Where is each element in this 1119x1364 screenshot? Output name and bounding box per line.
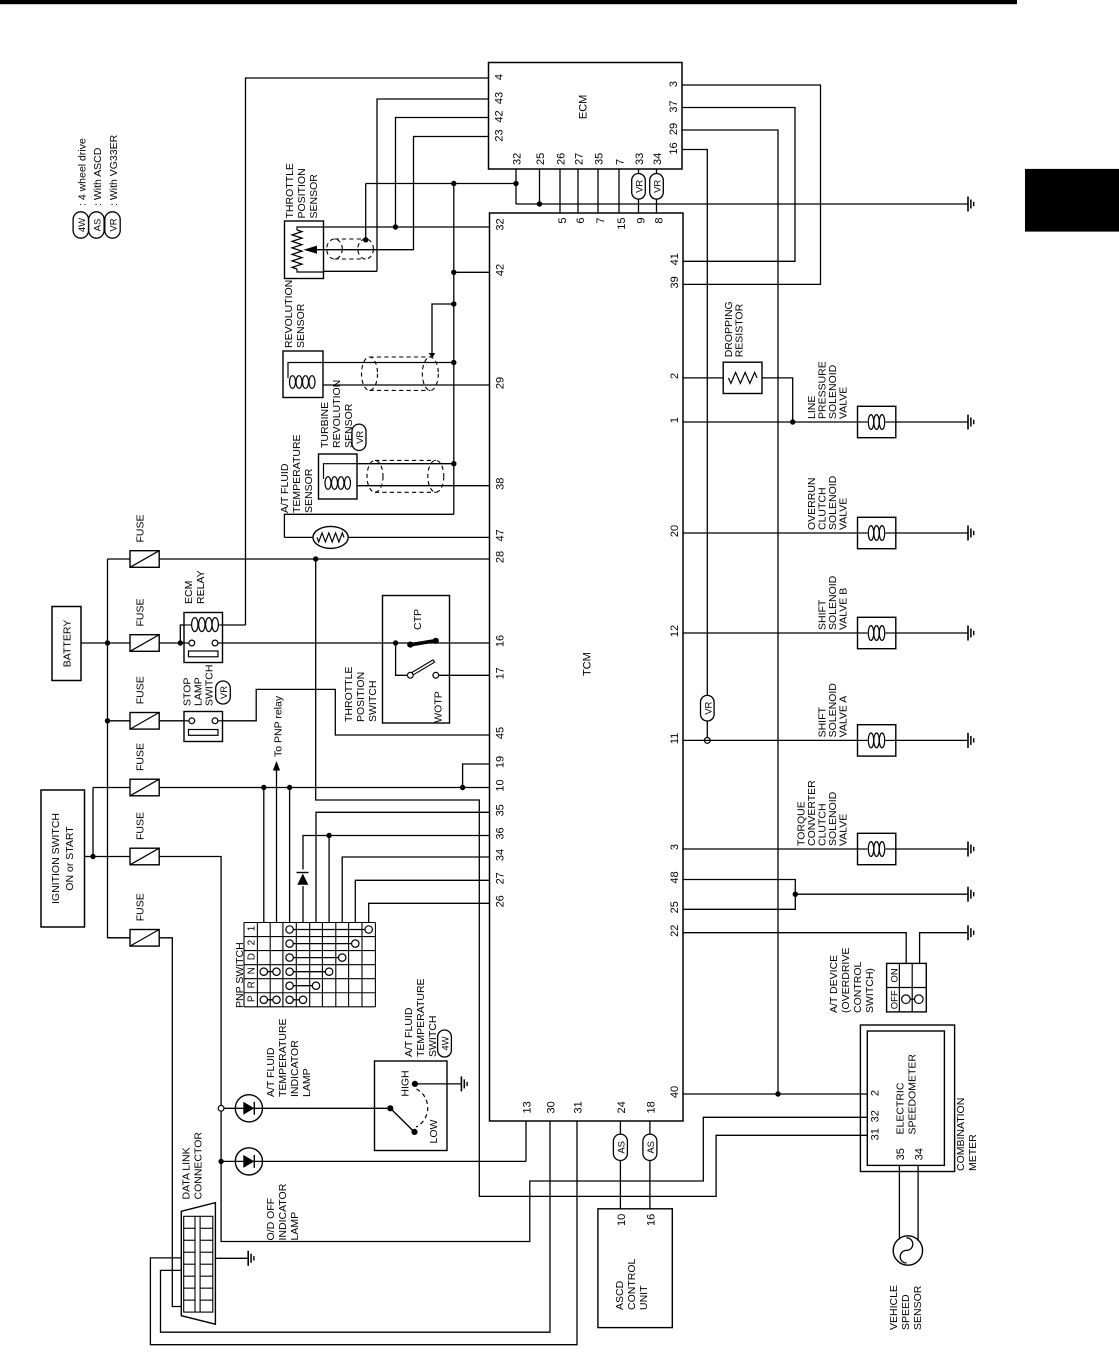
svg-text:FUSE: FUSE: [135, 598, 147, 626]
svg-text:19: 19: [494, 756, 506, 768]
svg-text:AS: AS: [646, 1141, 657, 1154]
svg-text:R: R: [247, 981, 258, 988]
svg-text:7: 7: [595, 218, 607, 224]
svg-text:17: 17: [494, 667, 506, 679]
svg-text:35: 35: [594, 153, 606, 165]
svg-text:FUSE: FUSE: [135, 893, 147, 921]
svg-text:SWITCH: SWITCH: [204, 665, 216, 706]
svg-text:27: 27: [574, 153, 586, 165]
svg-text:31: 31: [869, 1128, 881, 1140]
svg-text:CONTROL: CONTROL: [852, 962, 864, 1013]
svg-text:RESISTOR: RESISTOR: [734, 303, 746, 357]
svg-text:11: 11: [669, 733, 681, 744]
svg-text:REVOLUTION: REVOLUTION: [331, 380, 343, 448]
svg-text:POSITION: POSITION: [296, 168, 308, 218]
svg-text:39: 39: [669, 276, 681, 288]
svg-text:(OVERDRIVE: (OVERDRIVE: [840, 948, 852, 1013]
svg-text:SWITCH): SWITCH): [864, 968, 876, 1013]
svg-text:6: 6: [575, 218, 587, 224]
svg-text:23: 23: [494, 129, 506, 141]
svg-text:1: 1: [247, 925, 258, 931]
svg-text:VR: VR: [219, 686, 230, 699]
svg-text:A/T FLUID: A/T FLUID: [279, 463, 291, 513]
svg-text:ELECTRIC: ELECTRIC: [895, 1082, 907, 1134]
svg-text:VALVE B: VALVE B: [837, 588, 849, 630]
svg-text:VALVE: VALVE: [837, 387, 849, 419]
svg-text:4W: 4W: [441, 1036, 452, 1050]
svg-text:22: 22: [669, 925, 681, 937]
svg-text:VR: VR: [635, 180, 646, 193]
svg-text:TURBINE: TURBINE: [319, 402, 331, 448]
svg-text:LOW: LOW: [428, 1119, 440, 1143]
svg-text:1: 1: [669, 417, 681, 423]
svg-text:ECM: ECM: [183, 581, 195, 604]
svg-text:26: 26: [494, 895, 506, 907]
svg-text:N: N: [247, 967, 258, 974]
svg-text:3: 3: [668, 81, 680, 87]
svg-text:BATTERY: BATTERY: [62, 620, 74, 667]
svg-text:25: 25: [669, 901, 681, 913]
svg-text:WOTP: WOTP: [433, 691, 445, 723]
svg-text:METER: METER: [967, 1134, 979, 1171]
svg-text:SENSOR: SENSOR: [912, 1285, 924, 1330]
svg-text:VALVE: VALVE: [837, 498, 849, 530]
svg-text:A/T FLUID: A/T FLUID: [265, 1047, 277, 1097]
svg-text:42: 42: [494, 264, 506, 276]
svg-text:CONNECTOR: CONNECTOR: [193, 1132, 205, 1200]
svg-text:18: 18: [645, 1101, 657, 1113]
svg-text:VALVE: VALVE: [837, 814, 849, 846]
svg-text:31: 31: [572, 1101, 584, 1113]
svg-text:A/T FLUID: A/T FLUID: [403, 1007, 415, 1057]
svg-text:P: P: [247, 995, 258, 1002]
svg-text:COMBINATION: COMBINATION: [955, 1098, 967, 1171]
svg-text:SPEED: SPEED: [900, 1294, 912, 1330]
svg-text:VR: VR: [653, 180, 664, 193]
svg-text:INDICATOR: INDICATOR: [289, 1040, 301, 1097]
svg-text:TEMPERATURE: TEMPERATURE: [277, 1018, 289, 1097]
svg-text:30: 30: [545, 1101, 557, 1113]
svg-text:8: 8: [654, 218, 666, 224]
svg-text:TEMPERATURE: TEMPERATURE: [291, 434, 303, 513]
svg-text:25: 25: [535, 153, 547, 165]
svg-text:FUSE: FUSE: [135, 514, 147, 542]
svg-text:34: 34: [494, 849, 506, 861]
svg-text:A/T DEVICE: A/T DEVICE: [828, 955, 840, 1013]
svg-text:3: 3: [669, 844, 681, 850]
svg-text:SPEEDOMETER: SPEEDOMETER: [907, 1054, 919, 1135]
svg-text:43: 43: [494, 92, 506, 104]
svg-text:15: 15: [616, 218, 628, 230]
svg-text:RELAY: RELAY: [195, 570, 207, 604]
svg-text:: 4 wheel drive: : 4 wheel drive: [76, 138, 88, 206]
svg-text:24: 24: [616, 1101, 628, 1113]
svg-text:35: 35: [494, 804, 506, 816]
svg-text:SENSOR: SENSOR: [303, 468, 315, 513]
svg-text:10: 10: [494, 779, 506, 791]
svg-text:SWITCH: SWITCH: [367, 681, 379, 722]
svg-text:32: 32: [512, 153, 524, 165]
svg-text:CTP: CTP: [412, 609, 424, 630]
svg-text:4W: 4W: [77, 218, 88, 232]
svg-text:16: 16: [494, 635, 506, 647]
svg-text:TCM: TCM: [581, 652, 593, 676]
svg-text:FUSE: FUSE: [135, 812, 147, 840]
svg-text:10: 10: [616, 1214, 628, 1226]
svg-text:D: D: [247, 953, 258, 960]
svg-text:34: 34: [914, 1148, 926, 1160]
svg-text:LAMP: LAMP: [289, 1212, 301, 1241]
svg-text:: With ASCD: : With ASCD: [92, 147, 104, 206]
svg-text:2: 2: [869, 1090, 881, 1096]
svg-text:20: 20: [669, 525, 681, 537]
svg-text:4: 4: [494, 74, 506, 80]
svg-text:O/D OFF: O/D OFF: [265, 1198, 277, 1241]
svg-text:29: 29: [494, 377, 506, 389]
svg-text:26: 26: [556, 153, 568, 165]
svg-text:ECM: ECM: [578, 95, 590, 119]
svg-text:29: 29: [668, 123, 680, 135]
svg-text:THROTTLE: THROTTLE: [284, 163, 296, 218]
svg-text:TEMPERATURE: TEMPERATURE: [415, 978, 427, 1057]
svg-text:FUSE: FUSE: [135, 676, 147, 704]
svg-text:35: 35: [895, 1148, 907, 1160]
svg-text:7: 7: [615, 159, 627, 165]
svg-text:ASCD: ASCD: [614, 1280, 626, 1310]
svg-text:40: 40: [669, 1086, 681, 1098]
svg-text:VEHICLE: VEHICLE: [888, 1285, 900, 1330]
svg-text:INDICATOR: INDICATOR: [277, 1183, 289, 1240]
svg-text:45: 45: [494, 727, 506, 739]
svg-text:32: 32: [494, 218, 506, 230]
svg-text:48: 48: [669, 871, 681, 883]
svg-text:UNIT: UNIT: [638, 1285, 650, 1310]
svg-text:42: 42: [494, 110, 506, 122]
svg-text:To PNP relay: To PNP relay: [273, 695, 285, 757]
svg-text:38: 38: [494, 478, 506, 490]
svg-text:DATA LINK: DATA LINK: [181, 1147, 193, 1199]
svg-text:ON or START: ON or START: [64, 826, 76, 891]
svg-text:VALVE A: VALVE A: [837, 696, 849, 738]
svg-text:OFF: OFF: [889, 990, 900, 1009]
svg-text:: With VG33ER: : With VG33ER: [108, 134, 120, 206]
svg-text:CONTROL: CONTROL: [626, 1259, 638, 1310]
svg-text:IGNITION SWITCH: IGNITION SWITCH: [50, 813, 62, 904]
svg-text:33: 33: [634, 153, 646, 165]
svg-text:VR: VR: [355, 431, 366, 444]
svg-text:2: 2: [669, 373, 681, 379]
svg-text:AS: AS: [93, 219, 104, 232]
svg-text:SENSOR: SENSOR: [295, 303, 307, 348]
svg-text:34: 34: [652, 153, 664, 165]
svg-text:37: 37: [668, 100, 680, 112]
svg-text:FUSE: FUSE: [135, 743, 147, 771]
svg-text:POSITION: POSITION: [355, 672, 367, 722]
svg-text:9: 9: [636, 218, 648, 224]
svg-text:VR: VR: [109, 218, 120, 231]
svg-text:27: 27: [494, 872, 506, 884]
svg-text:16: 16: [645, 1214, 657, 1226]
svg-text:5: 5: [557, 218, 569, 224]
svg-text:REVOLUTION: REVOLUTION: [283, 280, 295, 348]
svg-text:12: 12: [669, 625, 681, 637]
svg-text:ON: ON: [889, 968, 900, 982]
svg-text:SENSOR: SENSOR: [308, 174, 320, 219]
svg-text:28: 28: [494, 551, 506, 563]
svg-text:AS: AS: [617, 1141, 628, 1154]
svg-text:16: 16: [668, 142, 680, 154]
svg-text:13: 13: [521, 1101, 533, 1113]
svg-text:HIGH: HIGH: [400, 1070, 412, 1096]
svg-text:LAMP: LAMP: [301, 1068, 313, 1097]
svg-text:THROTTLE: THROTTLE: [343, 667, 355, 722]
svg-text:41: 41: [669, 253, 681, 265]
svg-text:36: 36: [494, 827, 506, 839]
svg-text:VR: VR: [704, 701, 715, 714]
svg-text:47: 47: [494, 529, 506, 541]
svg-text:2: 2: [247, 939, 258, 945]
svg-text:32: 32: [869, 1110, 881, 1122]
